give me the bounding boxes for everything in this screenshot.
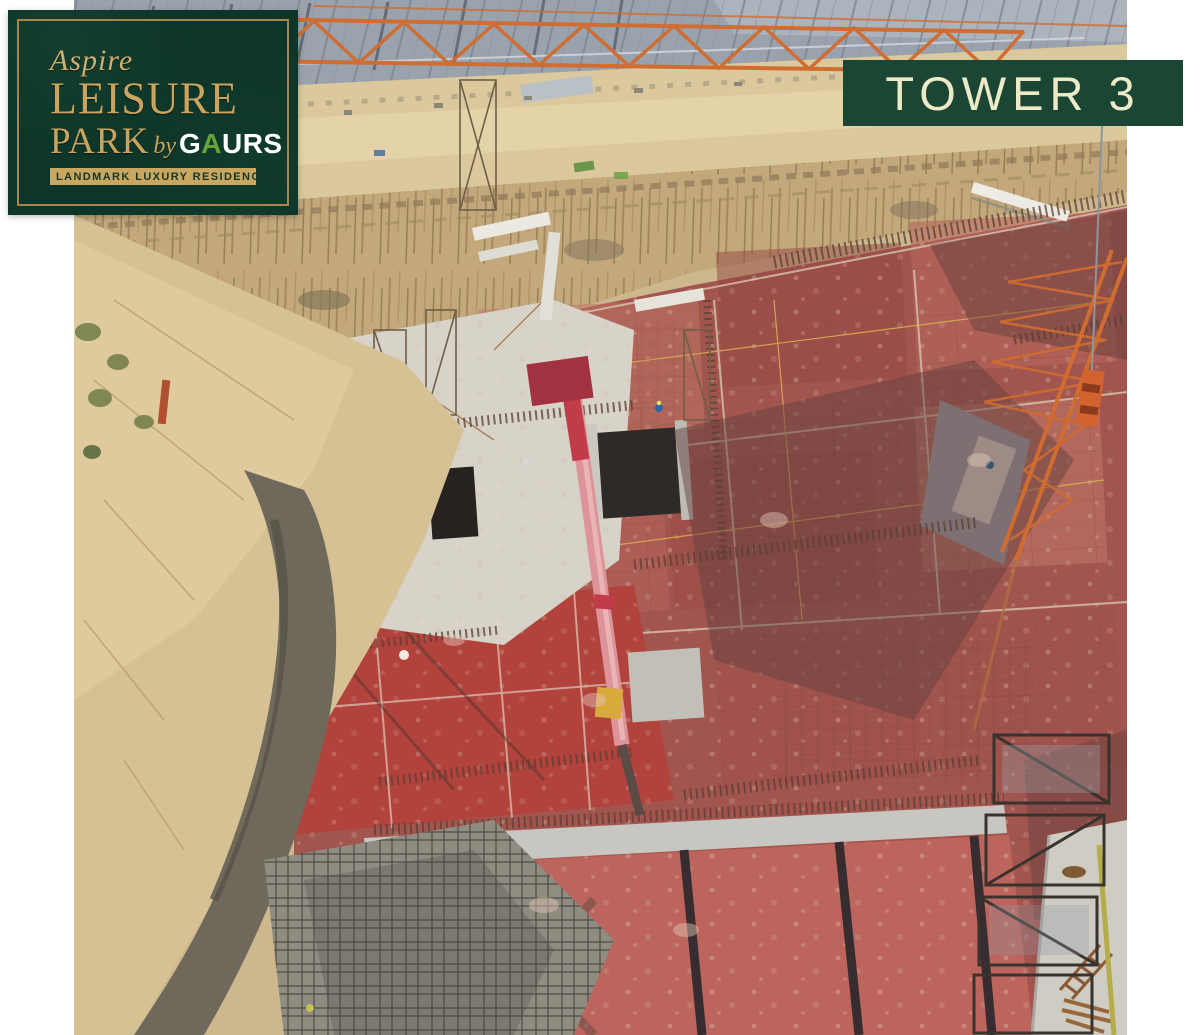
tower-banner: TOWER 3 <box>843 60 1183 126</box>
logo-leisure-text: LEISURE <box>50 76 256 123</box>
logo-park-text: PARK <box>50 123 149 160</box>
logo-park-line: PARK by GAURS <box>50 123 256 160</box>
logo-text-stack: Aspire LEISURE PARK by GAURS LANDMARK LU… <box>8 10 298 215</box>
gaurs-letters-urs: URS <box>222 128 283 159</box>
logo-gaurs-wordmark: GAURS <box>179 128 283 160</box>
logo-aspire-text: Aspire <box>50 46 256 76</box>
gaurs-letter-g: G <box>179 128 201 159</box>
logo-by-text: by <box>153 133 176 160</box>
page: Aspire LEISURE PARK by GAURS LANDMARK LU… <box>0 0 1200 1035</box>
logo-tagline-band: LANDMARK LUXURY RESIDENCES <box>50 168 256 185</box>
tower-banner-label: TOWER 3 <box>885 66 1140 121</box>
logo-badge: Aspire LEISURE PARK by GAURS LANDMARK LU… <box>8 10 298 215</box>
gaurs-letter-a-green: A <box>201 128 222 159</box>
